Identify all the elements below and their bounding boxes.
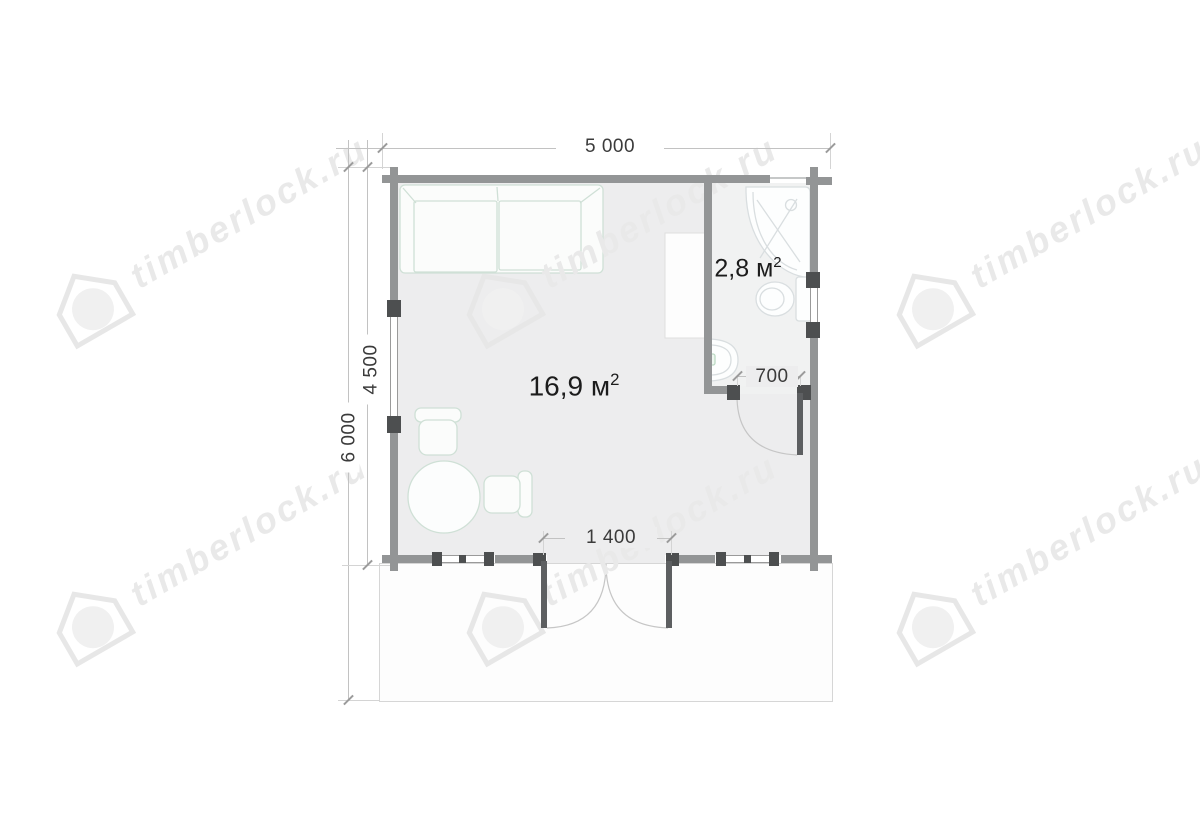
main-room-area-sup: 2 (610, 370, 619, 389)
floor-plan: timberlock.ru timberlock.ru timberlock.r… (0, 0, 1200, 827)
chair-top (415, 408, 461, 455)
window-frame-bracket (716, 552, 726, 566)
dimension-total-height: 6 000 (339, 403, 360, 473)
bottom-wall (382, 555, 432, 563)
bottom-wall (679, 555, 715, 563)
window-left-wall (390, 317, 398, 417)
bathroom-partition-wall (704, 175, 712, 393)
bathroom-area-sup: 2 (773, 254, 781, 271)
extension-line (382, 133, 383, 169)
window-mullion (744, 555, 751, 563)
window-frame-bracket (387, 300, 401, 317)
window-frame-bracket (387, 416, 401, 433)
toilet (756, 277, 812, 321)
bathroom-door-jamb (727, 385, 740, 400)
window-frame-bracket (484, 552, 494, 566)
door-swing-arcs (547, 396, 797, 628)
bathroom-door-swing (737, 396, 797, 455)
bathroom-door-leaf (797, 393, 803, 455)
dimension-inner-height: 4 500 (361, 335, 382, 405)
entrance-door-left-swing (547, 564, 606, 628)
window-frame-bracket (769, 552, 779, 566)
window-frame-bracket (806, 272, 820, 288)
extension-line (830, 133, 831, 169)
window-mullion (459, 555, 466, 563)
top-wall-opening-line (770, 177, 806, 179)
dining-table (408, 461, 480, 533)
chair-right (484, 471, 532, 517)
dimension-bathroom-door: 700 (746, 366, 798, 387)
bottom-wall (781, 555, 832, 563)
right-wall (810, 167, 818, 571)
bed (400, 185, 603, 273)
main-room-area-value: 16,9 м (529, 370, 611, 401)
wardrobe (665, 233, 706, 338)
furniture-layer (0, 0, 1200, 827)
entrance-door-right-swing (606, 564, 668, 628)
window-frame-bracket (806, 322, 820, 338)
bottom-wall (495, 555, 533, 563)
bathroom-area-label: 2,8 м2 (698, 254, 798, 283)
main-room-area-label: 16,9 м2 (504, 370, 644, 402)
bathroom-area-value: 2,8 м (714, 254, 773, 282)
entrance-door-left-leaf (541, 561, 547, 628)
dimension-top-width: 5 000 (556, 136, 664, 157)
window-frame-bracket (432, 552, 442, 566)
dimension-entrance-door: 1 400 (565, 527, 657, 548)
window-right-wall (810, 288, 818, 323)
entrance-door-right-leaf (666, 561, 672, 628)
